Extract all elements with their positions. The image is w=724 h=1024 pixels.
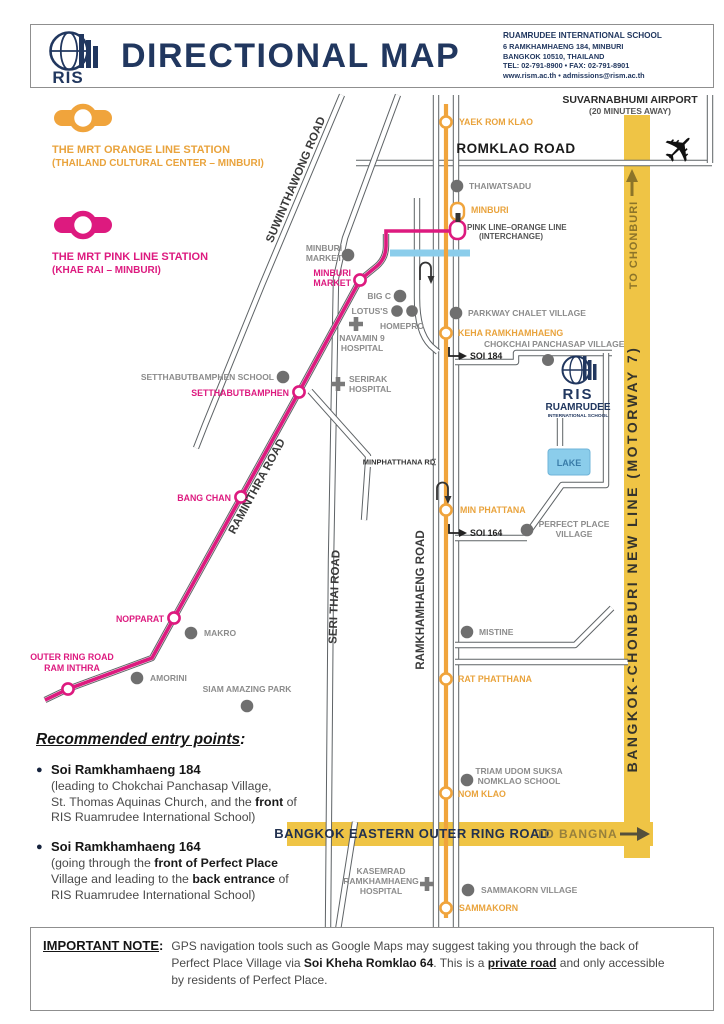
note-l2b: Soi Kheha Romklao 64 — [304, 956, 433, 970]
ris-map-logo-name: RUAMRUDEE — [546, 402, 611, 413]
airport-name: SUVARNABHUMI AIRPORT — [562, 94, 698, 106]
entry-points: Recommended entry points: ● Soi Ramkhamh… — [36, 731, 338, 903]
legend-pink-title: THE MRT PINK LINE STATION — [52, 251, 320, 263]
legend: THE MRT ORANGE LINE STATION (THAILAND CU… — [52, 100, 320, 314]
station-min-phattana: MIN PHATTANA — [460, 505, 526, 515]
interchange-label-1: PINK LINE–ORANGE LINE — [467, 223, 567, 232]
entry-points-heading-colon: : — [240, 731, 245, 748]
entry-184-l2a: St. Thomas Aquinas Church, and the — [51, 795, 255, 809]
entry-184-line-2: St. Thomas Aquinas Church, and the front… — [51, 795, 297, 811]
road-minphatthana-label: MINPHATTHANA RD — [363, 458, 436, 467]
legend-pink-line: THE MRT PINK LINE STATION (KHAE RAI – MI… — [52, 207, 320, 276]
landmark-siam-park: SIAM AMAZING PARK — [203, 684, 293, 694]
landmark-makro: MAKRO — [204, 628, 236, 638]
landmark-amorini: AMORINI — [150, 673, 187, 683]
entry-184-l2c: of — [283, 795, 297, 809]
entry-164-line-3: RIS Ruamrudee International School) — [51, 888, 289, 904]
entry-points-heading: Recommended entry points: — [36, 731, 338, 749]
landmark-perfect-2: VILLAGE — [556, 529, 593, 539]
landmark-serirak-2: HOSPITAL — [349, 384, 391, 394]
landmark-homepro: HOMEPRO — [380, 321, 424, 331]
to-bangna-label: TO BANGNA — [536, 827, 617, 841]
entry-184-title: Soi Ramkhamhaeng 184 — [51, 762, 297, 777]
note-l2e: and only accessible — [556, 956, 664, 970]
entry-184-l2b: front — [255, 795, 283, 809]
motorway-label: BANGKOK-CHONBURI NEW LINE (MOTORWAY 7) — [624, 346, 640, 773]
ris-map-logo: RIS RUAMRUDEE INTERNATIONAL SCHOOL — [546, 356, 611, 419]
school-info: RUAMRUDEE INTERNATIONAL SCHOOL 6 RAMKHAM… — [503, 31, 703, 80]
airplane-icon: ✈ — [653, 122, 708, 177]
school-phone: TEL: 02-791-8900 • FAX: 02-791-8901 — [503, 61, 703, 71]
to-chonburi-label: TO CHONBURI — [628, 201, 640, 289]
entry-164-title: Soi Ramkhamhaeng 164 — [51, 839, 289, 854]
bullet-icon: ● — [36, 762, 51, 826]
header: RIS DIRECTIONAL MAP RUAMRUDEE INTERNATIO… — [30, 24, 714, 88]
lake-label: LAKE — [557, 458, 582, 468]
landmark-setthabut-school: SETTHABUTBAMPHEN SCHOOL — [141, 372, 274, 382]
note-label: IMPORTANT NOTE: — [43, 938, 163, 1000]
entry-point-164: ● Soi Ramkhamhaeng 164 (going through th… — [36, 839, 338, 903]
school-address-1: 6 RAMKHAMHAENG 184, MINBURI — [503, 42, 703, 52]
landmark-triam-1: TRIAM UDOM SUKSA — [475, 766, 562, 776]
interchange-label-2: (INTERCHANGE) — [479, 232, 543, 241]
station-sammakorn: SAMMAKORN — [459, 903, 518, 913]
bullet-icon: ● — [36, 839, 51, 903]
entry-164-l1b: front of Perfect Place — [154, 856, 278, 870]
ris-map-logo-sub: INTERNATIONAL SCHOOL — [548, 413, 609, 419]
landmark-thaiwatsadu: THAIWATSADU — [469, 181, 531, 191]
landmark-navamin-2: HOSPITAL — [341, 343, 383, 353]
school-web: www.rism.ac.th • admissions@rism.ac.th — [503, 71, 703, 81]
road-raminthra-label: RAMINTHRA ROAD — [227, 437, 288, 536]
entry-184-line-3: RIS Ruamrudee International School) — [51, 810, 297, 826]
station-keha-ramkhamhaeng: KEHA RAMKHAMHAENG — [458, 328, 563, 338]
note-body: GPS navigation tools such as Google Maps… — [171, 938, 664, 1000]
legend-orange-title: THE MRT ORANGE LINE STATION — [52, 144, 320, 156]
lake: LAKE — [548, 449, 590, 475]
station-rat-phatthana: RAT PHATTHANA — [458, 674, 533, 684]
station-yaek-rom-klao: YAEK ROM KLAO — [459, 117, 533, 127]
road-romklao-label: ROMKLAO ROAD — [456, 141, 575, 156]
school-name: RUAMRUDEE INTERNATIONAL SCHOOL — [503, 31, 703, 42]
landmark-kasemrad-3: HOSPITAL — [360, 886, 402, 896]
note-l2a: Perfect Place Village via — [171, 956, 304, 970]
station-minburi: MINBURI — [471, 205, 509, 215]
note-label-colon: : — [159, 938, 163, 953]
station-nom-klao: NOM KLAO — [458, 789, 506, 799]
entry-164-l2c: of — [275, 872, 289, 886]
note-line-3: by residents of Perfect Place. — [171, 972, 664, 989]
school-address-2: BANGKOK 10510, THAILAND — [503, 52, 703, 62]
note-label-text: IMPORTANT NOTE — [43, 938, 159, 953]
station-bang-chan: BANG CHAN — [177, 493, 231, 503]
entry-164-l2a: Village and leading to the — [51, 872, 192, 886]
legend-pink-subtitle: (KHAE RAI – MINBURI) — [52, 265, 320, 276]
landmark-sammakorn-village: SAMMAKORN VILLAGE — [481, 885, 578, 895]
directional-map-page: LAKE — [0, 0, 724, 1024]
note-line-1: GPS navigation tools such as Google Maps… — [171, 938, 664, 955]
legend-orange-line: THE MRT ORANGE LINE STATION (THAILAND CU… — [52, 100, 320, 169]
entry-points-heading-text: Recommended entry points — [36, 731, 240, 748]
ris-map-logo-abbr: RIS — [562, 386, 593, 403]
entry-164-l1a: (going through the — [51, 856, 154, 870]
note-l2d: private road — [488, 956, 557, 970]
legend-orange-subtitle: (THAILAND CULTURAL CENTER – MINBURI) — [52, 158, 320, 169]
landmark-kasemrad-1: KASEMRAD — [356, 866, 405, 876]
landmark-parkway: PARKWAY CHALET VILLAGE — [468, 308, 586, 318]
landmark-perfect-1: PERFECT PLACE — [539, 519, 610, 529]
landmark-serirak-1: SERIRAK — [349, 374, 388, 384]
note-l2c: . This is a — [433, 956, 487, 970]
note-line-2: Perfect Place Village via Soi Kheha Romk… — [171, 955, 664, 972]
entry-184-line-1: (leading to Chokchai Panchasap Village, — [51, 779, 297, 795]
entry-point-184: ● Soi Ramkhamhaeng 184 (leading to Chokc… — [36, 762, 338, 826]
road-ramkhamhaeng-label: RAMKHAMHAENG ROAD — [415, 530, 427, 669]
ris-logo: RIS — [41, 26, 103, 86]
entry-164-line-2: Village and leading to the back entrance… — [51, 872, 289, 888]
airport-note: (20 MINUTES AWAY) — [589, 106, 671, 116]
landmark-navamin-1: NAVAMIN 9 — [339, 333, 385, 343]
important-note: IMPORTANT NOTE: GPS navigation tools suc… — [30, 927, 714, 1011]
landmark-lotus: LOTUS'S — [352, 306, 389, 316]
landmark-big-c: BIG C — [367, 291, 391, 301]
ris-logo-abbr: RIS — [52, 68, 83, 86]
landmark-chokchai: CHOKCHAI PANCHASAP VILLAGE — [484, 339, 625, 349]
entry-164-line-1: (going through the front of Perfect Plac… — [51, 856, 289, 872]
landmark-kasemrad-2: RAMKHAMHAENG — [343, 876, 419, 886]
road-seri-thai-label: SERI THAI ROAD — [327, 550, 342, 644]
station-setthabutbamphen: SETTHABUTBAMPHEN — [191, 388, 289, 398]
interchange-station-icon — [450, 203, 465, 239]
station-nopparat: NOPPARAT — [116, 614, 165, 624]
pink-station-icon — [52, 207, 114, 243]
landmark-triam-2: NOMKLAO SCHOOL — [478, 776, 561, 786]
soi-184-label: SOI 184 — [470, 351, 502, 361]
station-outer-ring-2: RAM INTHRA — [44, 663, 100, 673]
orange-station-icon — [52, 100, 114, 136]
entry-164-l2b: back entrance — [192, 872, 275, 886]
soi-164-label: SOI 164 — [470, 528, 502, 538]
station-outer-ring-1: OUTER RING ROAD — [30, 652, 114, 662]
page-title: DIRECTIONAL MAP — [121, 37, 460, 76]
landmark-mistine: MISTINE — [479, 627, 514, 637]
